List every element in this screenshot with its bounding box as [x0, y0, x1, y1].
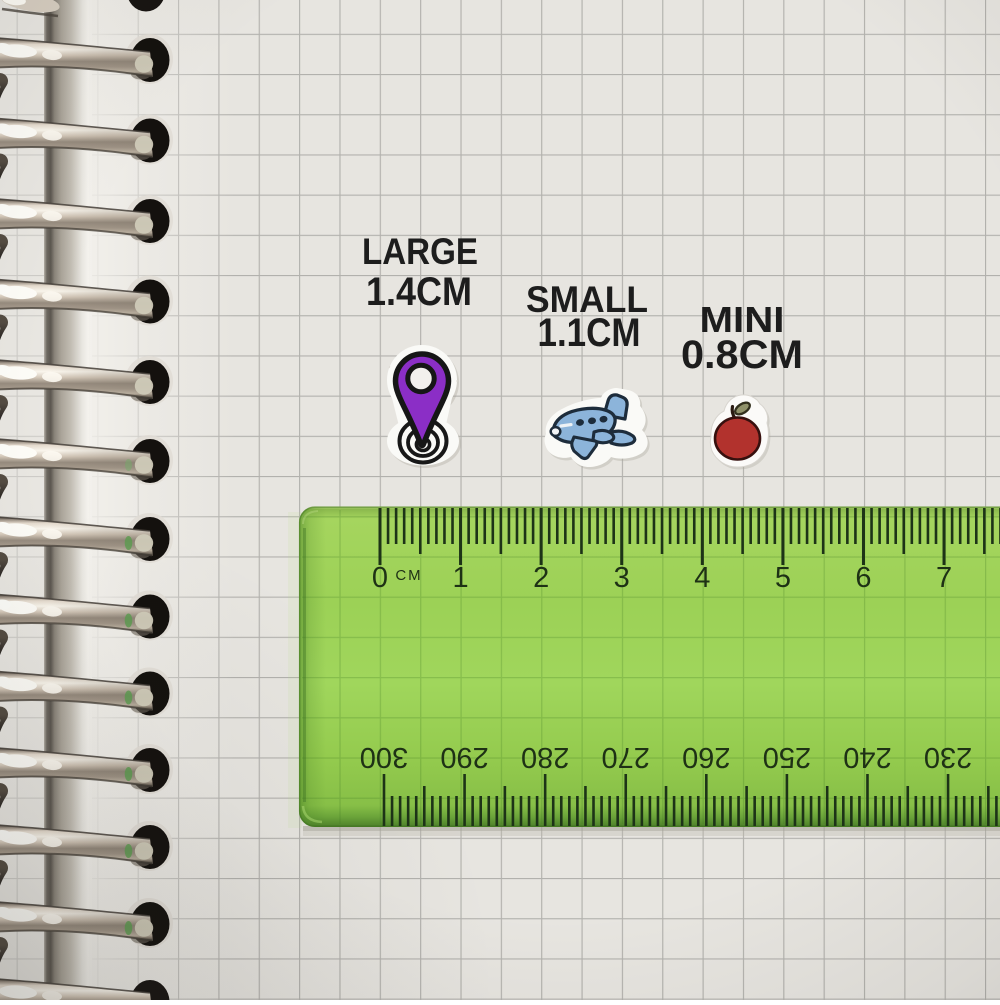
svg-text:270: 270 — [602, 741, 650, 773]
svg-text:CM: CM — [395, 567, 422, 584]
svg-text:260: 260 — [682, 741, 730, 773]
svg-text:250: 250 — [763, 741, 811, 773]
svg-text:300: 300 — [360, 741, 408, 773]
svg-text:5: 5 — [775, 562, 791, 594]
svg-text:1: 1 — [453, 562, 469, 594]
svg-text:2: 2 — [533, 562, 549, 594]
svg-text:1.1CM: 1.1CM — [538, 311, 641, 355]
svg-text:3: 3 — [614, 562, 630, 594]
svg-text:LARGE: LARGE — [362, 231, 478, 272]
svg-text:280: 280 — [521, 741, 569, 773]
svg-text:240: 240 — [843, 741, 891, 773]
svg-text:4: 4 — [694, 562, 710, 594]
svg-text:0.8CM: 0.8CM — [681, 333, 803, 377]
svg-text:6: 6 — [855, 562, 871, 594]
svg-text:230: 230 — [924, 741, 972, 773]
svg-text:0: 0 — [372, 562, 388, 594]
svg-text:7: 7 — [936, 562, 952, 594]
svg-text:1.4CM: 1.4CM — [366, 270, 472, 314]
svg-text:290: 290 — [440, 741, 488, 773]
